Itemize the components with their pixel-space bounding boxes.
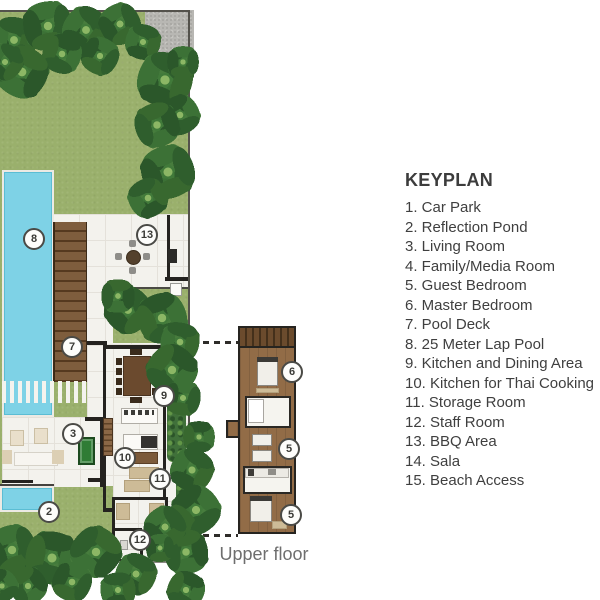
bed-bench xyxy=(256,388,279,393)
keyplan-items: 1. Car Park2. Reflection Pond3. Living R… xyxy=(405,198,600,491)
legend-item: 1. Car Park xyxy=(405,198,600,218)
bbq-chair xyxy=(129,240,136,247)
dining-chair xyxy=(130,397,142,403)
room-marker-7: 7 xyxy=(61,336,83,358)
bbq-grill xyxy=(168,249,177,263)
room-marker-11: 11 xyxy=(149,468,171,490)
master-bed-headboard xyxy=(257,357,278,362)
staircase xyxy=(103,418,113,456)
staff-bed xyxy=(116,503,130,520)
guest-bed-headboard xyxy=(250,496,272,501)
storage-bench xyxy=(124,480,150,492)
legend-item: 15. Beach Access xyxy=(405,471,600,491)
room-marker-13: 13 xyxy=(136,224,158,246)
bbq-wall xyxy=(167,215,170,280)
room-marker-10: 10 xyxy=(114,447,136,469)
legend-item: 10. Kitchen for Thai Cooking xyxy=(405,374,600,394)
legend-item: 7. Pool Deck xyxy=(405,315,600,335)
legend-item: 4. Family/Media Room xyxy=(405,257,600,277)
pool-deck xyxy=(53,222,87,382)
thai-kitchen-stove xyxy=(141,436,157,448)
room-marker-3: 3 xyxy=(62,423,84,445)
legend-item: 2. Reflection Pond xyxy=(405,218,600,238)
legend-item: 5. Guest Bedroom xyxy=(405,276,600,296)
legend-item: 11. Storage Room xyxy=(405,393,600,413)
floorplan-canvas: 8137931011212655 KEYPLAN 1. Car Park2. R… xyxy=(0,0,600,600)
keyplan-legend: KEYPLAN 1. Car Park2. Reflection Pond3. … xyxy=(405,170,600,491)
side-table xyxy=(52,450,64,464)
dining-chair xyxy=(130,349,142,355)
room-marker-5: 5 xyxy=(278,438,300,460)
room-marker-6: 6 xyxy=(281,361,303,383)
upper-landing xyxy=(226,420,240,438)
upper-deck-strip xyxy=(238,326,296,348)
pool-walkway xyxy=(2,381,88,403)
legend-item: 6. Master Bedroom xyxy=(405,296,600,316)
legend-item: 13. BBQ Area xyxy=(405,432,600,452)
room-marker-8: 8 xyxy=(23,228,45,250)
room-marker-9: 9 xyxy=(153,385,175,407)
legend-item: 3. Living Room xyxy=(405,237,600,257)
bbq-chair xyxy=(115,253,122,260)
side-table xyxy=(2,450,12,464)
armchair xyxy=(10,430,24,446)
bath-sink xyxy=(248,469,254,476)
living-wall xyxy=(88,478,103,482)
armchair xyxy=(34,428,48,444)
bbq-wall xyxy=(165,277,188,281)
bath-fixture xyxy=(268,469,276,475)
bbq-chair xyxy=(129,267,136,274)
dining-chairs xyxy=(116,358,122,395)
staff-wall xyxy=(112,497,168,500)
legend-item: 9. Kitchen and Dining Area xyxy=(405,354,600,374)
legend-item: 8. 25 Meter Lap Pool xyxy=(405,335,600,355)
kitchen-island-items xyxy=(124,410,154,415)
wardrobe xyxy=(252,434,272,446)
upper-floor-label: Upper floor xyxy=(202,544,326,565)
palm-tree-icon xyxy=(99,277,137,315)
legend-item: 14. Sala xyxy=(405,452,600,472)
palm-tree-icon xyxy=(165,44,201,80)
lap-pool xyxy=(2,170,54,417)
bbq-round-table xyxy=(126,250,141,265)
wardrobe xyxy=(252,450,272,462)
living-wall xyxy=(2,480,33,483)
room-marker-5: 5 xyxy=(280,504,302,526)
guest-bed xyxy=(248,399,264,423)
bbq-chair xyxy=(143,253,150,260)
room-marker-2: 2 xyxy=(38,501,60,523)
palm-tree-icon xyxy=(181,419,217,455)
legend-item: 12. Staff Room xyxy=(405,413,600,433)
room-marker-12: 12 xyxy=(129,529,151,551)
keyplan-title: KEYPLAN xyxy=(405,170,600,191)
